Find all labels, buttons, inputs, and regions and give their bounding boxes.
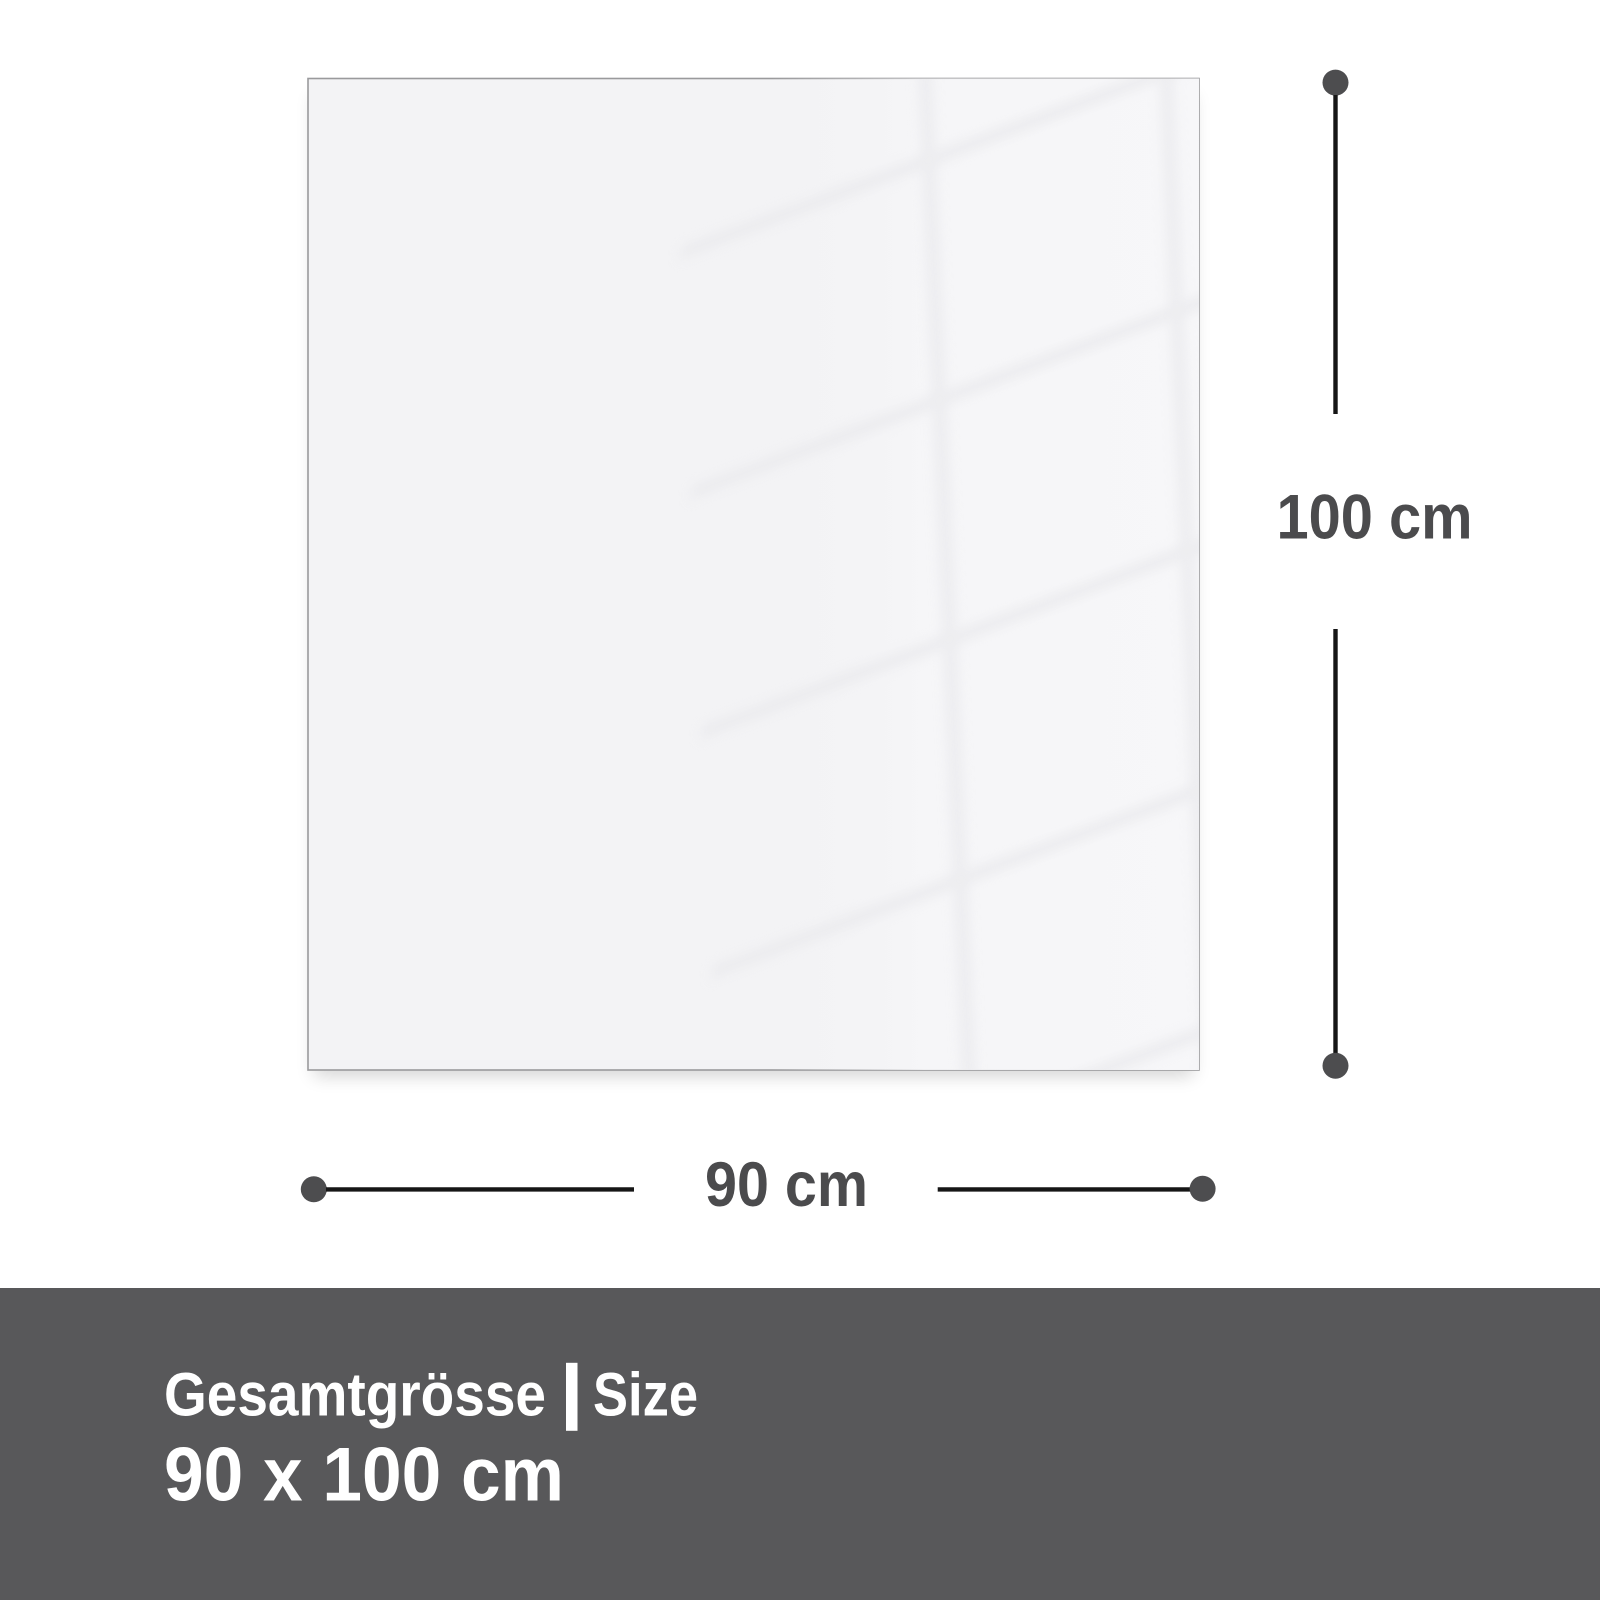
svg-text:Size: Size [593,1360,698,1428]
svg-text:90 cm: 90 cm [705,1150,868,1220]
svg-text:Gesamtgrösse: Gesamtgrösse [164,1360,546,1428]
svg-text:100 cm: 100 cm [1277,483,1473,553]
svg-text:90 x 100 cm: 90 x 100 cm [164,1433,564,1518]
